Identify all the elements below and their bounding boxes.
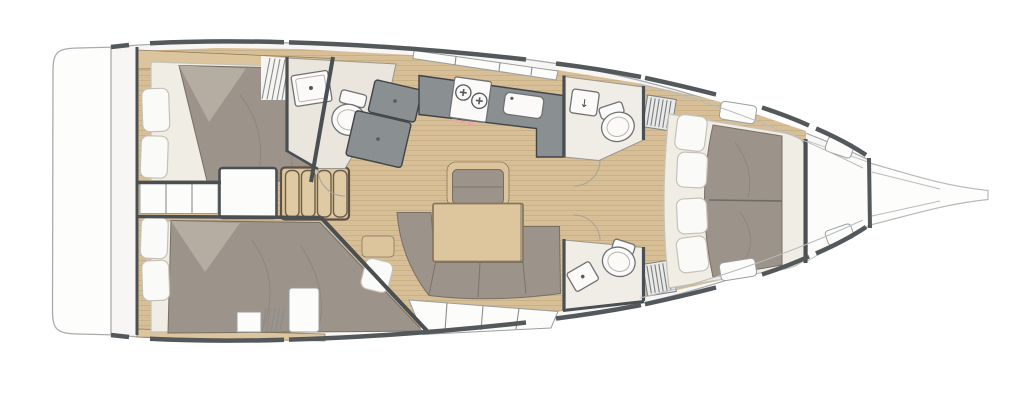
fwd-duvet-split (709, 200, 782, 201)
fwd-pillow-4 (676, 235, 710, 273)
aft-port-pillow-2 (140, 136, 168, 179)
yacht-floorplan-canvas: ↓ (0, 0, 1025, 400)
engine-compartment (140, 184, 218, 214)
fwd-pillow-2 (676, 152, 708, 189)
step-4 (334, 171, 348, 218)
galley-stove (449, 77, 492, 128)
companionway-steps (281, 168, 349, 220)
fwd-pillow-1 (674, 114, 708, 152)
companionway-landing (220, 168, 277, 218)
aft-stbd-pillow-2 (142, 260, 170, 301)
saloon-chair (447, 162, 509, 207)
nav-panel-dot-2 (376, 137, 380, 141)
nav-panel-dot-1 (393, 99, 397, 103)
basin-arrow-icon: ↓ (579, 96, 590, 110)
aft-stbd-side-panel (237, 312, 261, 332)
aft-stbd-door-panel (289, 288, 319, 332)
aft-port-pillow-1 (142, 88, 170, 132)
bowsprit (870, 163, 988, 225)
saloon-table (433, 204, 523, 262)
fwd-pillow-3 (676, 198, 708, 235)
galley-sink (503, 92, 545, 119)
fwd-head-port-washbasin: ↓ (569, 89, 599, 117)
yacht-floorplan: ↓ (0, 0, 1025, 400)
side-shelf (362, 236, 394, 257)
step-1 (286, 171, 300, 218)
aft-stbd-pillow-1 (140, 217, 168, 259)
